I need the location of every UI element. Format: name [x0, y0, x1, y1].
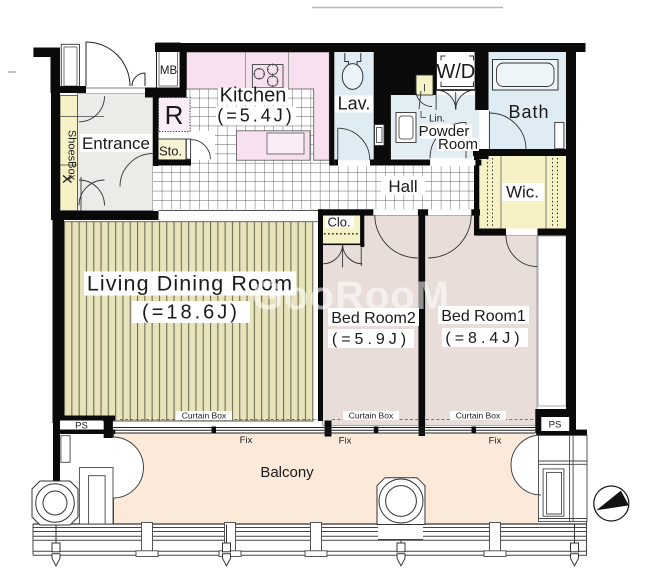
- svg-text:(=18.6J): (=18.6J): [142, 302, 240, 324]
- svg-text:Fix: Fix: [240, 435, 253, 446]
- svg-text:Entrance: Entrance: [82, 134, 150, 153]
- svg-text:PS: PS: [75, 421, 88, 432]
- svg-text:PS: PS: [549, 420, 562, 431]
- svg-text:R: R: [165, 100, 184, 130]
- svg-text:Room: Room: [438, 136, 478, 153]
- svg-text:Sto.: Sto.: [159, 144, 182, 159]
- svg-text:Curtain Box: Curtain Box: [182, 411, 227, 421]
- svg-text:Balcony: Balcony: [260, 464, 314, 481]
- svg-text:W/D: W/D: [436, 61, 475, 83]
- svg-text:Curtain Box: Curtain Box: [349, 411, 394, 421]
- svg-text:ShoesBox: ShoesBox: [66, 130, 78, 181]
- svg-text:Lin.: Lin.: [429, 114, 445, 125]
- svg-text:Curtain Box: Curtain Box: [456, 411, 501, 421]
- svg-text:Lav.: Lav.: [338, 94, 371, 114]
- svg-text:Fix: Fix: [339, 436, 352, 447]
- svg-text:Wic.: Wic.: [506, 183, 539, 202]
- svg-text:(=5.4J): (=5.4J): [217, 106, 295, 126]
- svg-text:Bed Room1: Bed Room1: [441, 308, 526, 325]
- svg-text:Fix: Fix: [489, 436, 502, 447]
- svg-text:Bath: Bath: [508, 102, 549, 122]
- svg-text:MB: MB: [160, 65, 178, 77]
- svg-text:(=8.4J): (=8.4J): [445, 330, 523, 347]
- svg-text:Kitchen: Kitchen: [220, 85, 287, 107]
- svg-text:(=5.9J): (=5.9J): [332, 331, 410, 348]
- svg-text:GooRooM: GooRooM: [252, 274, 450, 318]
- svg-text:Clo.: Clo.: [327, 215, 350, 230]
- svg-text:Hall: Hall: [388, 177, 417, 196]
